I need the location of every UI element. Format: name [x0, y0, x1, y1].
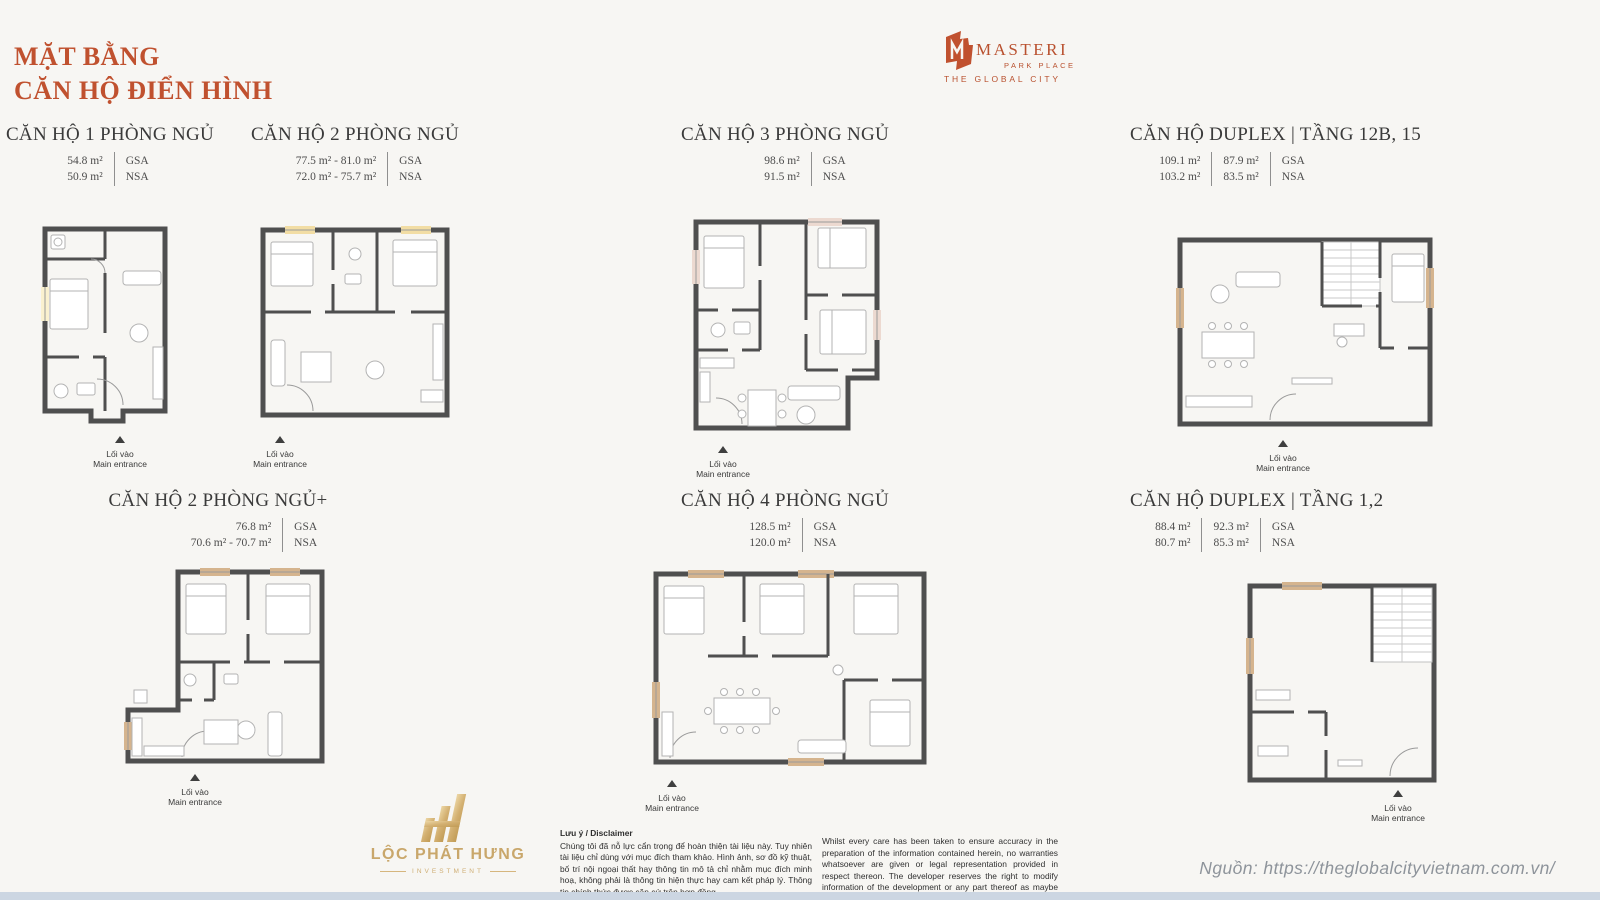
- entrance-arrow-icon: [190, 774, 200, 781]
- brand-subtitle: PARK PLACE: [1004, 61, 1076, 70]
- investor-subtitle: INVESTMENT: [368, 868, 528, 875]
- entrance-label-en: Main entrance: [622, 803, 722, 814]
- entrance-label-vi: Lối vào: [70, 449, 170, 460]
- gsa-value: 128.5 m²: [749, 519, 790, 535]
- investor-subtitle-text: INVESTMENT: [412, 868, 484, 875]
- brand-tagline: THE GLOBAL CITY: [944, 74, 1061, 84]
- floor-plan-2br-plus: [120, 562, 330, 771]
- nsa-value: 50.9 m²: [67, 169, 102, 185]
- floor-plan-duplex-lower: [1242, 578, 1442, 788]
- entrance-label-vi: Lối vào: [673, 459, 773, 470]
- unit-stats: 98.6 m² 91.5 m² GSA NSA: [695, 152, 915, 186]
- disclaimer-en: Whilst every care has been taken to ensu…: [822, 836, 1058, 900]
- entrance-label-vi: Lối vào: [230, 449, 330, 460]
- unit-title: CĂN HỘ 1 PHÒNG NGỦ: [0, 124, 220, 146]
- gsa-label: GSA: [1282, 153, 1305, 169]
- gsa-label: GSA: [126, 153, 149, 169]
- nsa-value: 91.5 m²: [764, 169, 799, 185]
- gsa-value: 77.5 m² - 81.0 m²: [296, 153, 376, 169]
- gsa-label: GSA: [1272, 519, 1295, 535]
- entrance-label-en: Main entrance: [230, 459, 330, 470]
- entrance-marker: Lối vào Main entrance: [673, 446, 773, 480]
- source-caption: Nguồn: https://theglobalcityvietnam.com.…: [1135, 858, 1555, 879]
- unit-title: CĂN HỘ DUPLEX | TẦNG 12B, 15: [1130, 124, 1410, 146]
- nsa-label: NSA: [399, 169, 422, 185]
- unit-stats: 54.8 m² 50.9 m² GSA NSA: [0, 152, 216, 186]
- disclaimer-vi: Lưu ý / Disclaimer Chúng tôi đã nỗ lực c…: [560, 828, 812, 899]
- nsa-value-2: 85.3 m²: [1213, 535, 1248, 551]
- entrance-marker: Lối vào Main entrance: [70, 436, 170, 470]
- unit-title: CĂN HỘ DUPLEX | TẦNG 1,2: [1130, 490, 1370, 512]
- brochure-page: MẶT BẰNG CĂN HỘ ĐIỂN HÌNH MASTERI PARK P…: [0, 0, 1600, 900]
- entrance-arrow-icon: [275, 436, 285, 443]
- entrance-arrow-icon: [1393, 790, 1403, 797]
- floor-plan-2br: [255, 220, 455, 425]
- floor-plan-3br: [688, 210, 885, 440]
- nsa-label: NSA: [814, 535, 837, 551]
- page-title-line2: CĂN HỘ ĐIỂN HÌNH: [14, 74, 414, 108]
- nsa-label: NSA: [1272, 535, 1295, 551]
- gsa-value: 54.8 m²: [67, 153, 102, 169]
- disclaimer-heading: Lưu ý / Disclaimer: [560, 828, 812, 840]
- rule-left: [380, 871, 406, 872]
- floor-plan-4br: [648, 562, 932, 776]
- bottom-strip: [0, 892, 1600, 900]
- gsa-value-2: 92.3 m²: [1213, 519, 1248, 535]
- gsa-value-1: 109.1 m²: [1159, 153, 1200, 169]
- unit-title: CĂN HỘ 4 PHÒNG NGỦ: [675, 490, 895, 512]
- nsa-value: 70.6 m² - 70.7 m²: [191, 535, 271, 551]
- entrance-label-vi: Lối vào: [622, 793, 722, 804]
- entrance-marker: Lối vào Main entrance: [230, 436, 330, 470]
- disclaimer-vi-text: Chúng tôi đã nỗ lực cẩn trọng để hoàn th…: [560, 841, 812, 899]
- unit-title: CĂN HỘ 2 PHÒNG NGỦ+: [108, 490, 328, 512]
- floor-plan-1br: [35, 215, 175, 432]
- nsa-value: 72.0 m² - 75.7 m²: [296, 169, 376, 185]
- entrance-label-en: Main entrance: [1233, 463, 1333, 474]
- entrance-arrow-icon: [718, 446, 728, 453]
- unit-card-1br: CĂN HỘ 1 PHÒNG NGỦ 54.8 m² 50.9 m² GSA N…: [0, 0, 1600, 900]
- entrance-label-en: Main entrance: [70, 459, 170, 470]
- entrance-label-en: Main entrance: [1348, 813, 1448, 824]
- entrance-arrow-icon: [667, 780, 677, 787]
- entrance-label-vi: Lối vào: [145, 787, 245, 798]
- brand-name: MASTERI: [976, 40, 1068, 60]
- entrance-arrow-icon: [115, 436, 125, 443]
- nsa-value-1: 103.2 m²: [1159, 169, 1200, 185]
- unit-stats: 76.8 m² 70.6 m² - 70.7 m² GSA NSA: [144, 518, 364, 552]
- page-title: MẶT BẰNG CĂN HỘ ĐIỂN HÌNH: [14, 40, 414, 108]
- rule-right: [490, 871, 516, 872]
- gsa-value: 76.8 m²: [191, 519, 271, 535]
- locphathung-logo-mark-icon: [412, 790, 484, 844]
- entrance-label-vi: Lối vào: [1233, 453, 1333, 464]
- floor-plan-duplex-upper: [1172, 228, 1438, 436]
- gsa-label: GSA: [399, 153, 422, 169]
- nsa-value-1: 80.7 m²: [1155, 535, 1190, 551]
- unit-stats: 77.5 m² - 81.0 m² 72.0 m² - 75.7 m² GSA …: [249, 152, 469, 186]
- entrance-label-vi: Lối vào: [1348, 803, 1448, 814]
- unit-card-3br: CĂN HỘ 3 PHÒNG NGỦ 98.6 m² 91.5 m² GSA N…: [0, 0, 1600, 900]
- gsa-value-2: 87.9 m²: [1223, 153, 1258, 169]
- gsa-label: GSA: [823, 153, 846, 169]
- unit-card-2br-plus: CĂN HỘ 2 PHÒNG NGỦ+ 76.8 m² 70.6 m² - 70…: [0, 0, 1600, 900]
- masteri-logo-mark-icon: [944, 30, 974, 74]
- nsa-label: NSA: [1282, 169, 1305, 185]
- gsa-label: GSA: [814, 519, 837, 535]
- disclaimer-en-text: Whilst every care has been taken to ensu…: [822, 836, 1058, 900]
- entrance-marker: Lối vào Main entrance: [145, 774, 245, 808]
- nsa-label: NSA: [823, 169, 846, 185]
- unit-stats: 128.5 m² 120.0 m² GSA NSA: [683, 518, 903, 552]
- page-title-line1: MẶT BẰNG: [14, 40, 414, 74]
- entrance-marker: Lối vào Main entrance: [1348, 790, 1448, 824]
- gsa-value: 98.6 m²: [764, 153, 799, 169]
- unit-title: CĂN HỘ 2 PHÒNG NGỦ: [245, 124, 465, 146]
- nsa-label: NSA: [294, 535, 317, 551]
- nsa-value-2: 83.5 m²: [1223, 169, 1258, 185]
- unit-stats: 88.4 m² 80.7 m² 92.3 m² 85.3 m² GSA NSA: [1120, 518, 1330, 552]
- unit-card-4br: CĂN HỘ 4 PHÒNG NGỦ 128.5 m² 120.0 m² GSA…: [0, 0, 1600, 900]
- entrance-label-en: Main entrance: [673, 469, 773, 480]
- gsa-label: GSA: [294, 519, 317, 535]
- unit-card-duplex-12b-15: CĂN HỘ DUPLEX | TẦNG 12B, 15 109.1 m² 10…: [0, 0, 1600, 900]
- investor-name: LỘC PHÁT HƯNG: [360, 846, 536, 864]
- gsa-value-1: 88.4 m²: [1155, 519, 1190, 535]
- unit-card-duplex-1-2: CĂN HỘ DUPLEX | TẦNG 1,2 88.4 m² 80.7 m²…: [0, 0, 1600, 900]
- unit-stats: 109.1 m² 103.2 m² 87.9 m² 83.5 m² GSA NS…: [1122, 152, 1342, 186]
- unit-title: CĂN HỘ 3 PHÒNG NGỦ: [675, 124, 895, 146]
- entrance-marker: Lối vào Main entrance: [1233, 440, 1333, 474]
- entrance-marker: Lối vào Main entrance: [622, 780, 722, 814]
- entrance-arrow-icon: [1278, 440, 1288, 447]
- unit-card-2br: CĂN HỘ 2 PHÒNG NGỦ 77.5 m² - 81.0 m² 72.…: [0, 0, 1600, 900]
- nsa-label: NSA: [126, 169, 149, 185]
- nsa-value: 120.0 m²: [749, 535, 790, 551]
- entrance-label-en: Main entrance: [145, 797, 245, 808]
